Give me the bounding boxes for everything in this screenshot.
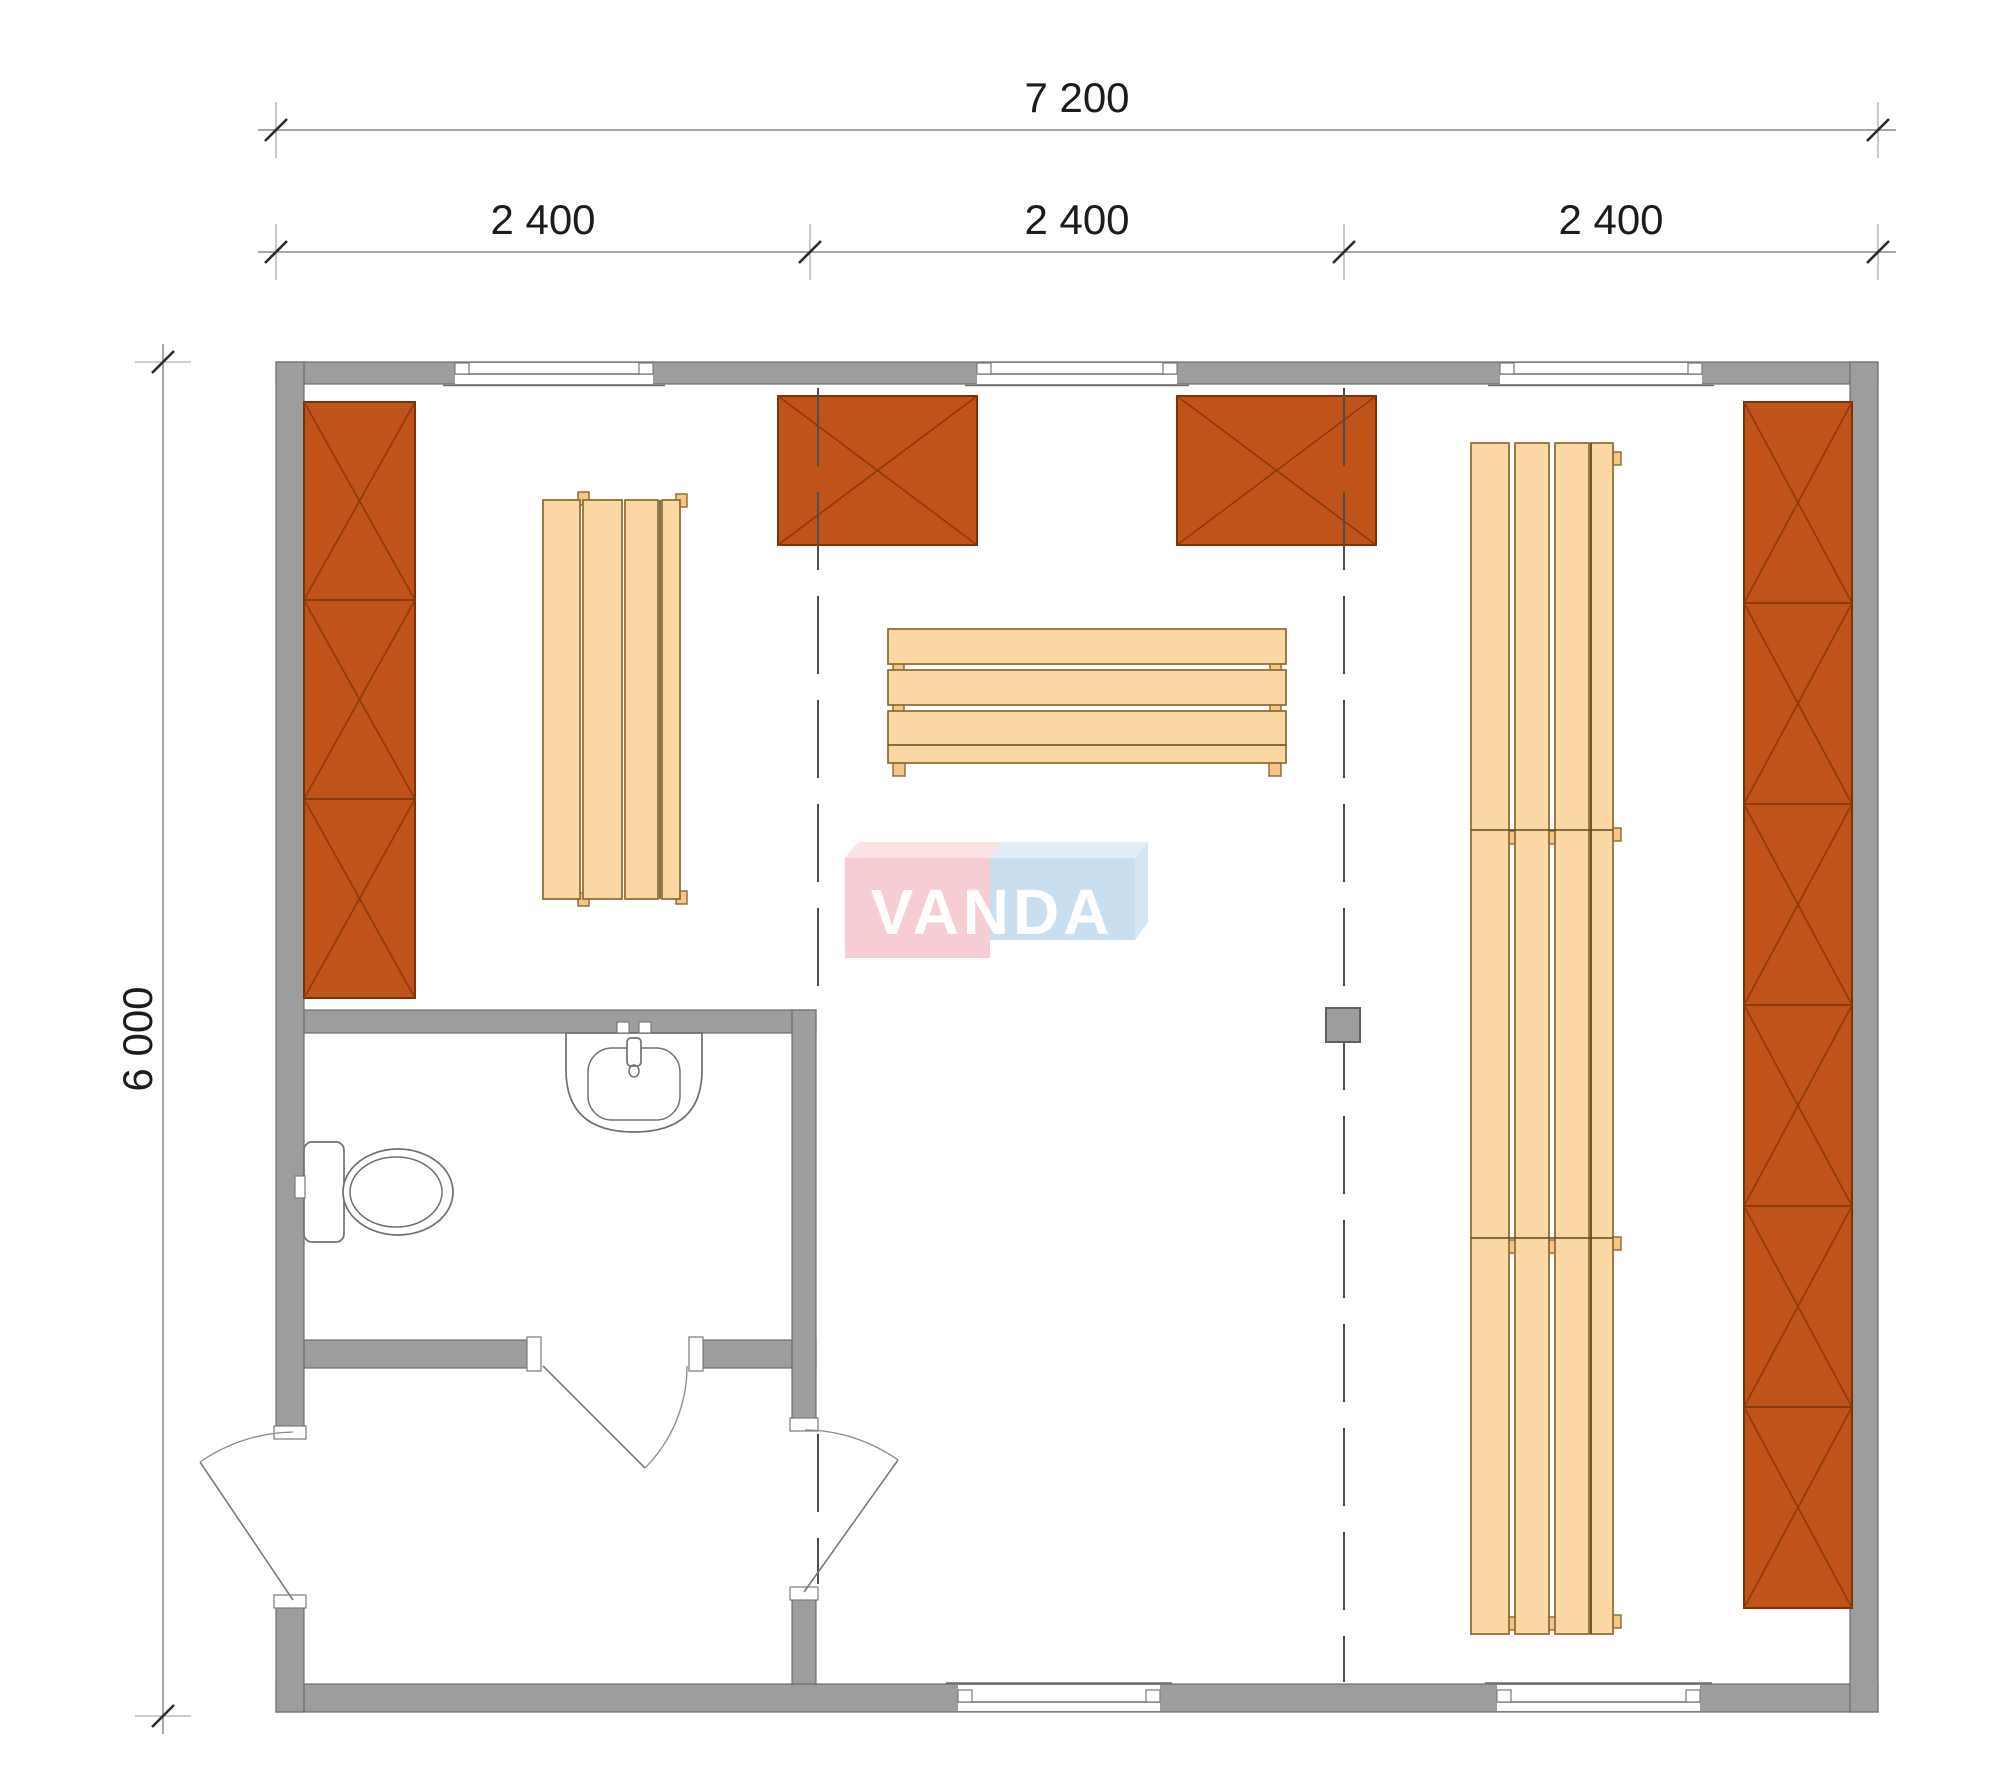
plumbing-connection	[617, 1022, 629, 1033]
window	[1485, 1683, 1712, 1711]
bench-board	[888, 670, 1286, 705]
bench-slat	[1471, 443, 1509, 1634]
door-jamb	[689, 1337, 703, 1371]
window	[946, 1683, 1172, 1711]
door-jamb	[790, 1587, 818, 1600]
window	[443, 363, 665, 386]
washbasin	[566, 1022, 702, 1132]
dimension-label-height: 6 000	[114, 986, 161, 1091]
logo-pink-top-face	[845, 842, 1003, 858]
cabinet-right	[1744, 402, 1852, 1608]
bench-slat	[1515, 443, 1549, 1634]
door-bathroom	[527, 1337, 703, 1468]
heater-box-right	[1177, 396, 1376, 545]
walls	[276, 362, 1878, 1712]
toilet-bowl	[343, 1149, 453, 1235]
door-leaf	[543, 1366, 645, 1468]
dimension-left-height: 6 000	[114, 344, 191, 1734]
toilet	[295, 1142, 453, 1242]
window	[965, 363, 1189, 386]
dimension-label-total-width: 7 200	[1024, 74, 1129, 121]
dimension-top-modules: 2 400 2 400 2 400	[258, 196, 1896, 280]
floor-plan-canvas: 7 200 2 400 2 400 2 400 6 000 VANDA	[0, 0, 2000, 1786]
bench-slat	[662, 500, 680, 899]
toilet-tank	[304, 1142, 344, 1242]
logo-blue-side-face	[1135, 842, 1148, 940]
bench-slat	[583, 500, 622, 899]
bathroom-fixtures	[295, 1022, 702, 1242]
bench-slat	[625, 500, 658, 899]
door-vestibule-to-hall	[790, 1418, 898, 1600]
window	[1488, 363, 1714, 386]
bench-column-right	[1471, 443, 1621, 1634]
door-jamb	[790, 1418, 818, 1431]
heater-box-left	[778, 396, 977, 545]
bench-left	[543, 492, 687, 906]
toilet-flush-plate	[295, 1176, 305, 1198]
logo-blue-top-face	[990, 842, 1148, 858]
bench-slat	[1591, 443, 1613, 1634]
door-jamb	[527, 1337, 541, 1371]
vanda-logo: VANDA	[845, 842, 1148, 958]
dimension-top-total: 7 200	[258, 74, 1896, 158]
windows-top	[443, 363, 1714, 386]
door-entry	[200, 1426, 306, 1608]
bench-board	[888, 629, 1286, 664]
bench-center	[888, 629, 1286, 776]
floor-plan-drawing: 7 200 2 400 2 400 2 400 6 000 VANDA	[0, 0, 2000, 1786]
bench-slat	[1555, 443, 1589, 1634]
wall-right	[1850, 362, 1878, 1712]
bench-slat	[543, 500, 580, 899]
door-swing-arc	[645, 1366, 687, 1468]
support-post	[1326, 1008, 1360, 1042]
cabinet-left	[304, 402, 415, 998]
wall-bathroom-top	[304, 1010, 816, 1033]
dimension-label-module-2: 2 400	[1024, 196, 1129, 243]
module-lines	[818, 388, 1344, 1682]
dimension-label-module-3: 2 400	[1558, 196, 1663, 243]
plumbing-connection	[639, 1022, 651, 1033]
bench-board	[888, 711, 1286, 763]
logo-wordmark: VANDA	[871, 876, 1114, 948]
faucet	[627, 1038, 641, 1066]
dimension-label-module-1: 2 400	[490, 196, 595, 243]
